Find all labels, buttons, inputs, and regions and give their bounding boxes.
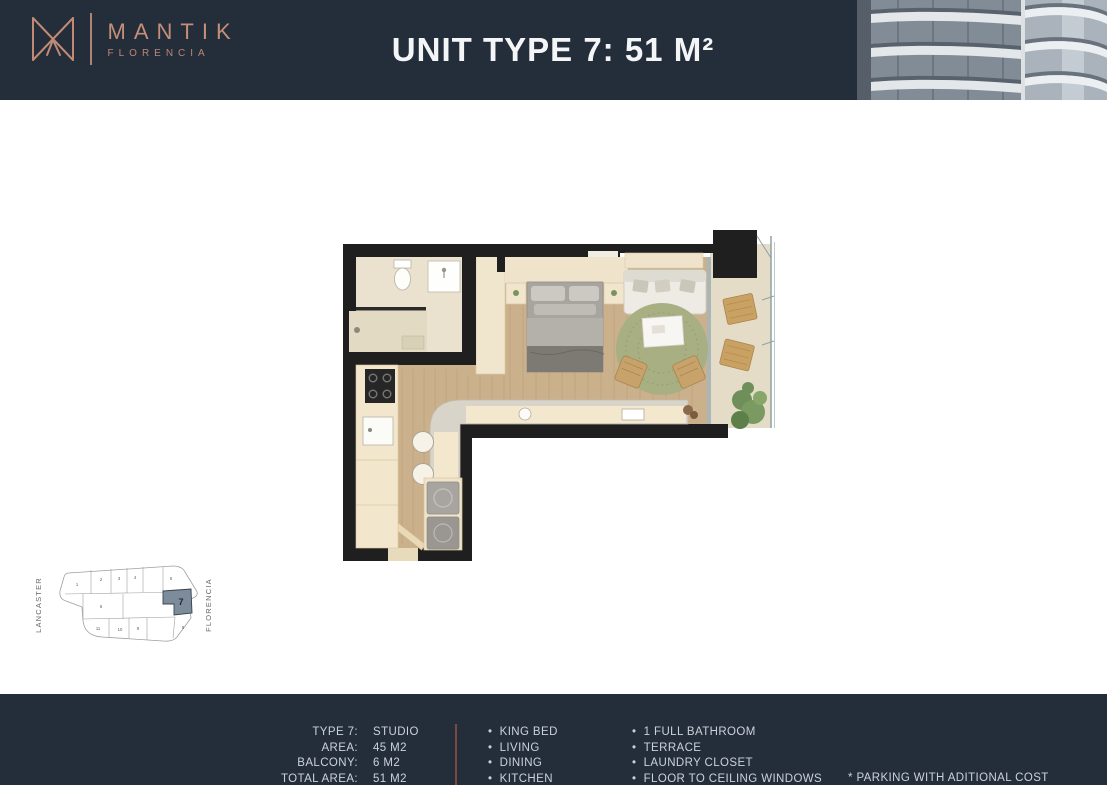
- brand-subname: FLORENCIA: [108, 48, 239, 59]
- stool-icon: [413, 432, 434, 453]
- console-table: [625, 253, 703, 268]
- plant-icon: [513, 290, 519, 296]
- entry-threshold: [388, 548, 418, 561]
- headboard-wall-band: [505, 257, 628, 283]
- parking-note: * PARKING WITH ADITIONAL COST: [848, 771, 1049, 787]
- spec-label: TYPE 7:: [150, 725, 358, 741]
- island-sink-icon: [519, 408, 531, 420]
- spec-label: AREA:: [150, 741, 358, 757]
- feature-item: 1 FULL BATHROOM: [632, 725, 822, 741]
- brand-logo: MANTIK FLORENCIA: [30, 11, 239, 67]
- brand-name: MANTIK: [108, 20, 239, 44]
- svg-text:10: 10: [118, 627, 123, 632]
- feature-item: DINING: [488, 756, 558, 772]
- spec-value: STUDIO: [373, 725, 419, 741]
- floorplan: [337, 226, 779, 574]
- spec-label: BALCONY:: [150, 756, 358, 772]
- logo-divider: [90, 13, 92, 65]
- feature-item: TERRACE: [632, 741, 822, 757]
- svg-text:11: 11: [96, 626, 101, 631]
- shower-divider-wall: [356, 307, 426, 311]
- feature-item: LIVING: [488, 741, 558, 757]
- island-appliance-icon: [622, 409, 644, 420]
- spec-table: TYPE 7:STUDIOAREA:45 M2BALCONY:6 M2TOTAL…: [150, 725, 419, 787]
- keyplan: LANCASTER FLORENCIA 1 2 3 4 5 6 8 9 10 1…: [25, 563, 225, 663]
- page-title: UNIT TYPE 7: 51 M²: [392, 31, 714, 69]
- spec-row: TYPE 7:STUDIO: [150, 725, 419, 741]
- building-photo: [857, 0, 1107, 100]
- footer-divider: [455, 724, 457, 785]
- plant-icon: [611, 290, 617, 296]
- king-bed: [527, 282, 604, 372]
- header-bar: MANTIK FLORENCIA UNIT TYPE 7: 51 M²: [0, 0, 1107, 100]
- spec-value: 6 M2: [373, 756, 400, 772]
- spec-row: BALCONY:6 M2: [150, 756, 419, 772]
- feature-item: LAUNDRY CLOSET: [632, 756, 822, 772]
- feature-list-1: KING BEDLIVINGDININGKITCHEN: [488, 725, 558, 787]
- keyplan-right-label: FLORENCIA: [204, 578, 213, 632]
- window-wall-glass: [707, 257, 711, 424]
- keyplan-unit-7-number: 7: [178, 597, 183, 607]
- bathroom-vanity-icon: [428, 261, 460, 292]
- lounge-cushion: [723, 293, 758, 325]
- cooktop-icon: [365, 369, 395, 403]
- shower-icon: [349, 311, 427, 352]
- mantik-logo-icon: [30, 15, 76, 63]
- coffee-table: [642, 316, 684, 348]
- spec-value: 45 M2: [373, 741, 407, 757]
- kitchen-sink-icon: [363, 417, 393, 445]
- spec-row: AREA:45 M2: [150, 741, 419, 757]
- island-cabinets: [466, 406, 686, 423]
- feature-item: KING BED: [488, 725, 558, 741]
- footer-bar: TYPE 7:STUDIOAREA:45 M2BALCONY:6 M2TOTAL…: [0, 694, 1107, 785]
- keyplan-left-label: LANCASTER: [34, 577, 43, 633]
- feature-list-2: 1 FULL BATHROOMTERRACELAUNDRY CLOSETFLOO…: [632, 725, 822, 787]
- toilet-icon: [394, 260, 411, 290]
- laundry-closet: [424, 478, 462, 550]
